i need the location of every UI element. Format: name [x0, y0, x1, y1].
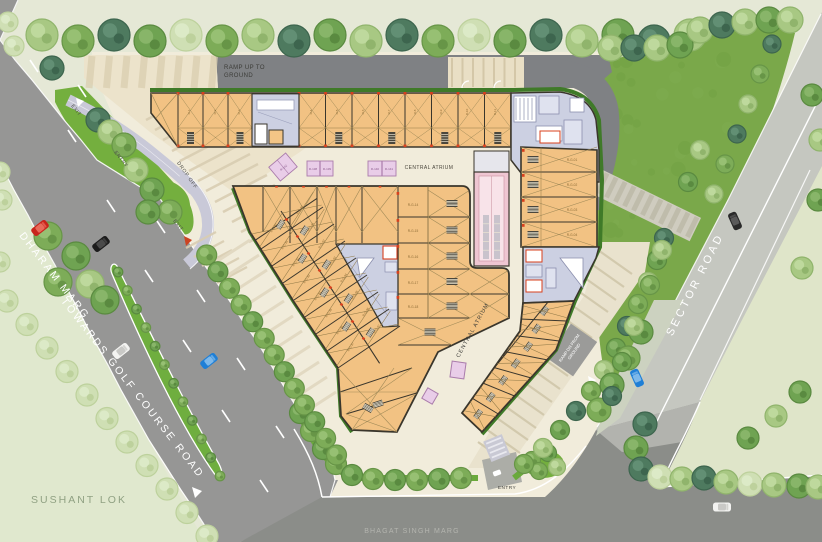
svg-text:R-G-04: R-G-04 — [567, 233, 578, 237]
svg-text:R-1: R-1 — [187, 109, 191, 114]
svg-text:R-G-01: R-G-01 — [567, 158, 578, 162]
svg-text:RAMP UP TO: RAMP UP TO — [224, 65, 265, 71]
svg-text:R-G-16: R-G-16 — [408, 255, 419, 259]
svg-text:BHAGAT SINGH MARG: BHAGAT SINGH MARG — [364, 528, 460, 535]
svg-text:R-8: R-8 — [413, 109, 417, 114]
svg-text:CENTRAL ATRIUM: CENTRAL ATRIUM — [405, 165, 454, 171]
svg-text:R-G-15: R-G-15 — [408, 229, 419, 233]
svg-text:R-139: R-139 — [323, 167, 332, 171]
svg-text:R-4: R-4 — [309, 109, 313, 114]
svg-text:R-9: R-9 — [439, 109, 443, 114]
svg-text:R-G-17: R-G-17 — [408, 281, 419, 285]
svg-text:R-10: R-10 — [465, 108, 469, 115]
svg-text:SUSHANT LOK: SUSHANT LOK — [31, 494, 127, 506]
svg-text:ENTRY: ENTRY — [498, 485, 517, 491]
svg-text:R-11: R-11 — [493, 109, 497, 116]
svg-text:R-G-02: R-G-02 — [567, 183, 578, 187]
svg-text:R-7: R-7 — [387, 109, 391, 114]
svg-text:R-G-14: R-G-14 — [408, 203, 419, 207]
svg-text:GROUND: GROUND — [224, 73, 253, 79]
svg-text:R-G-03: R-G-03 — [567, 208, 578, 212]
svg-text:R-G-18: R-G-18 — [408, 305, 419, 309]
svg-text:R-2: R-2 — [213, 109, 217, 114]
svg-text:R-138: R-138 — [309, 167, 318, 171]
svg-text:R-141: R-141 — [385, 167, 394, 171]
svg-text:R-6: R-6 — [361, 109, 365, 114]
svg-text:R-3: R-3 — [237, 109, 241, 114]
svg-text:R-140: R-140 — [371, 167, 380, 171]
svg-text:R-5: R-5 — [335, 109, 339, 114]
